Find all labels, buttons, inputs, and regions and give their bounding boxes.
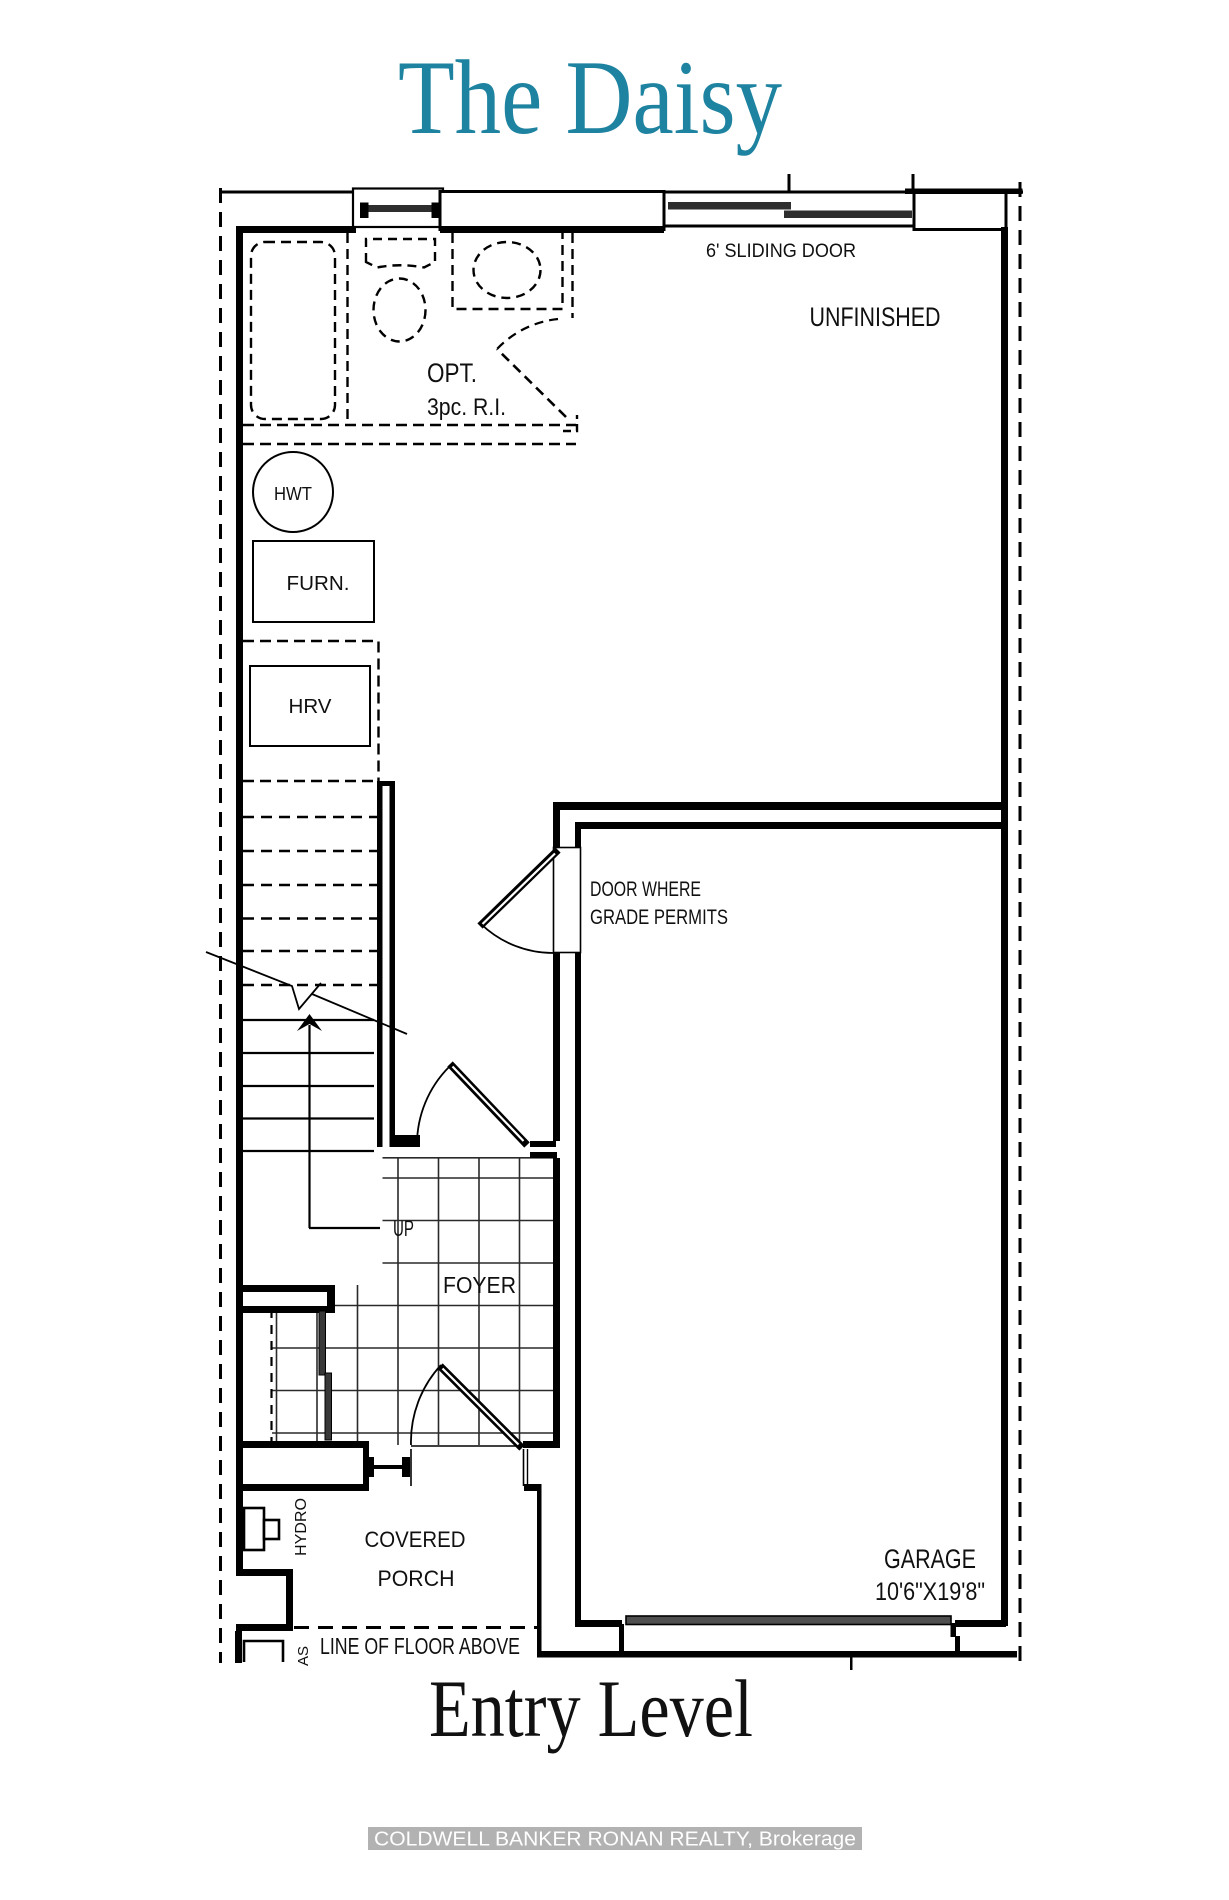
- svg-text:COVERED: COVERED: [365, 1527, 466, 1552]
- svg-text:FOYER: FOYER: [443, 1272, 516, 1298]
- svg-text:GARAGE: GARAGE: [884, 1544, 976, 1574]
- svg-text:UNFINISHED: UNFINISHED: [810, 302, 941, 332]
- svg-text:GRADE PERMITS: GRADE PERMITS: [590, 906, 728, 929]
- svg-text:DOOR WHERE: DOOR WHERE: [590, 878, 701, 901]
- svg-text:10'6"X19'8": 10'6"X19'8": [875, 1578, 985, 1606]
- svg-text:COLDWELL BANKER RONAN REALTY,: COLDWELL BANKER RONAN REALTY, Brokerage: [374, 1829, 856, 1851]
- svg-text:HYDRO: HYDRO: [293, 1498, 310, 1556]
- svg-text:AS: AS: [295, 1646, 312, 1666]
- svg-text:HWT: HWT: [274, 484, 312, 504]
- svg-text:3pc. R.I.: 3pc. R.I.: [427, 394, 506, 421]
- svg-text:LINE OF FLOOR ABOVE: LINE OF FLOOR ABOVE: [320, 1633, 520, 1659]
- svg-text:UP: UP: [393, 1216, 414, 1241]
- svg-text:The Daisy: The Daisy: [398, 39, 782, 156]
- svg-text:6' SLIDING DOOR: 6' SLIDING DOOR: [706, 241, 856, 262]
- svg-text:HRV: HRV: [289, 696, 333, 718]
- svg-text:Entry Level: Entry Level: [429, 1663, 753, 1754]
- svg-text:PORCH: PORCH: [378, 1566, 455, 1591]
- svg-text:FURN.: FURN.: [287, 573, 350, 595]
- svg-text:OPT.: OPT.: [427, 358, 477, 388]
